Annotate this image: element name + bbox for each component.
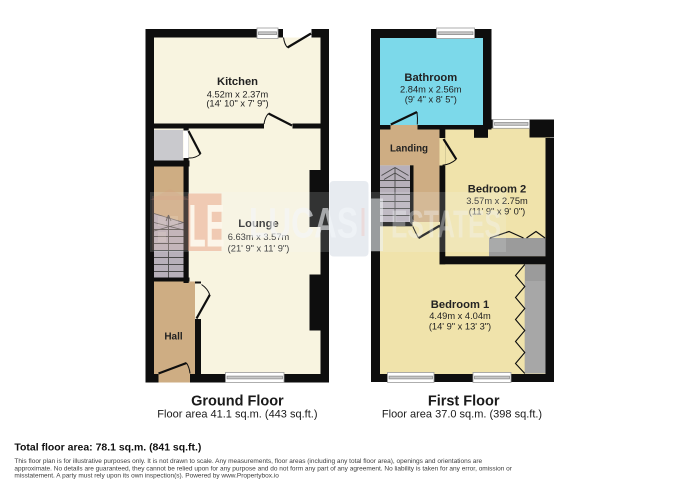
svg-text:(14' 9" x 13' 3"): (14' 9" x 13' 3") bbox=[429, 322, 491, 332]
svg-text:Bathroom: Bathroom bbox=[404, 72, 457, 84]
svg-text:Hall: Hall bbox=[164, 332, 183, 343]
svg-text:Total floor area: 78.1 sq.m. (: Total floor area: 78.1 sq.m. (841 sq.ft.… bbox=[14, 442, 201, 453]
svg-text:(14' 10" x 7' 9"): (14' 10" x 7' 9") bbox=[206, 98, 268, 108]
svg-text:Floor area 37.0 sq.m. (398 sq.: Floor area 37.0 sq.m. (398 sq.ft.) bbox=[382, 409, 542, 421]
svg-text:4.49m x 4.04m: 4.49m x 4.04m bbox=[429, 311, 491, 321]
svg-text:Landing: Landing bbox=[390, 144, 428, 155]
svg-text:misstatement. A party must rel: misstatement. A party must rely upon its… bbox=[14, 473, 279, 480]
svg-text:First Floor: First Floor bbox=[428, 394, 500, 410]
svg-text:2.84m x 2.56m: 2.84m x 2.56m bbox=[400, 84, 462, 94]
svg-text:Floor area 41.1 sq.m. (443 sq.: Floor area 41.1 sq.m. (443 sq.ft.) bbox=[157, 409, 317, 421]
svg-text:LE: LE bbox=[189, 193, 225, 260]
svg-text:Ground Floor: Ground Floor bbox=[191, 394, 284, 410]
svg-text:ESTATES: ESTATES bbox=[391, 204, 501, 247]
svg-text:Kitchen: Kitchen bbox=[217, 76, 258, 88]
svg-text:(9' 4" x 8' 5"): (9' 4" x 8' 5") bbox=[405, 94, 457, 104]
svg-text:Bedroom 1: Bedroom 1 bbox=[431, 299, 489, 311]
svg-text:This floor plan is for illustr: This floor plan is for illustrative purp… bbox=[14, 458, 482, 465]
svg-text:approximate. No details are gu: approximate. No details are guaranteed, … bbox=[14, 465, 512, 472]
svg-text:LUCAS: LUCAS bbox=[249, 200, 358, 248]
